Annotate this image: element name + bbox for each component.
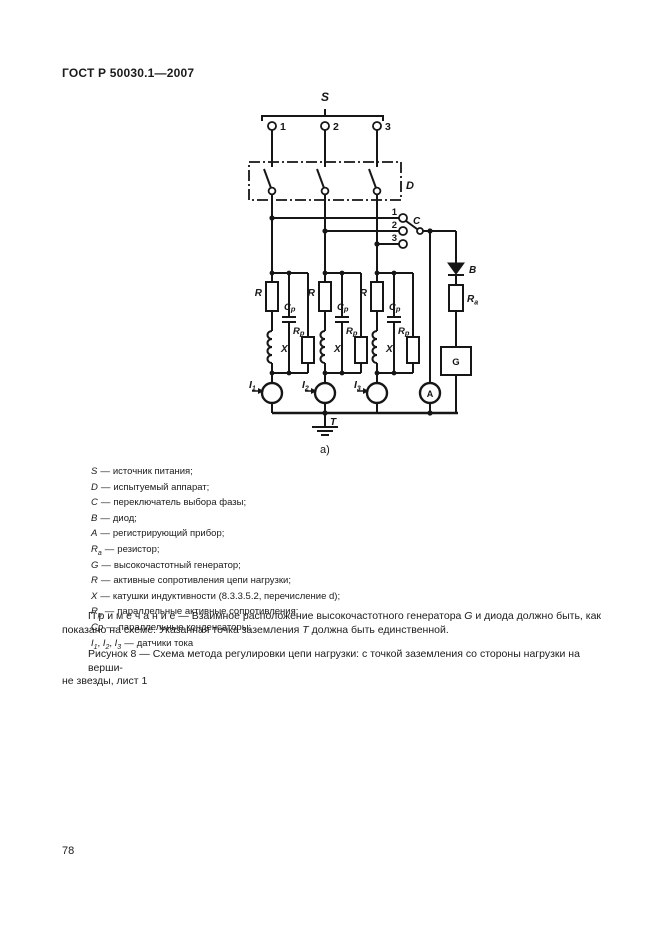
legend-item-g: G—высокочастотный генератор; bbox=[91, 560, 340, 576]
label-selector-2: 2 bbox=[392, 220, 397, 231]
note: П р и м е ч а н и е — Взаимное расположе… bbox=[62, 610, 610, 637]
legend-item-s: S—источник питания; bbox=[91, 466, 340, 482]
label-cp-1: Cp bbox=[284, 302, 296, 314]
legend-item-ra: Rа—резистор; bbox=[91, 544, 340, 560]
label-ground: T bbox=[330, 417, 337, 428]
legend-item-x: X—катушки индуктивности (8.3.3.5.2, пере… bbox=[91, 591, 340, 607]
label-sensor-2: I2 bbox=[302, 379, 309, 393]
label-cp-2: Cp bbox=[337, 302, 349, 314]
document-page: ГОСТ Р 50030.1—2007 bbox=[0, 0, 661, 936]
label-source: S bbox=[321, 90, 329, 104]
label-generator: G bbox=[452, 357, 459, 368]
label-selector-1: 1 bbox=[392, 207, 398, 218]
label-rp-3: Rp bbox=[398, 326, 410, 338]
label-load-r-3: R bbox=[360, 288, 368, 299]
circuit-diagram: S 1 2 3 D 1 2 3 C B Rа G A R R R X X X C… bbox=[0, 0, 661, 470]
label-rp-1: Rp bbox=[293, 326, 305, 338]
label-sensor-1: I1 bbox=[249, 379, 256, 393]
current-sensor-circles bbox=[262, 383, 440, 403]
legend-item-a: A—регистрирующий прибор; bbox=[91, 528, 340, 544]
label-terminal-1: 1 bbox=[280, 121, 286, 133]
label-rp-2: Rp bbox=[346, 326, 358, 338]
caption-line-2: не звезды, лист 1 bbox=[62, 675, 610, 689]
legend-item-b: B—диод; bbox=[91, 513, 340, 529]
label-device: D bbox=[406, 180, 414, 192]
label-resistor-ra: Rа bbox=[467, 294, 478, 307]
label-inductor-2: X bbox=[333, 344, 342, 355]
legend-item-d: D—испытуемый аппарат; bbox=[91, 482, 340, 498]
label-selector: C bbox=[413, 216, 421, 227]
contact-circles bbox=[268, 122, 423, 248]
note-line-1: П р и м е ч а н и е — Взаимное расположе… bbox=[62, 610, 610, 624]
label-meter: A bbox=[427, 389, 434, 399]
label-terminal-2: 2 bbox=[333, 121, 339, 133]
page-number: 78 bbox=[62, 845, 74, 857]
legend-item-c: C—переключатель выбора фазы; bbox=[91, 497, 340, 513]
note-line-2: показано на схеме. Указанная точка зазем… bbox=[62, 624, 610, 638]
label-inductor-1: X bbox=[280, 344, 289, 355]
figure-caption: Рисунок 8 — Схема метода регулировки цеп… bbox=[62, 648, 610, 689]
label-cp-3: Cp bbox=[389, 302, 401, 314]
diode-icon bbox=[448, 263, 464, 274]
label-selector-3: 3 bbox=[392, 233, 397, 244]
label-load-r-1: R bbox=[255, 288, 263, 299]
label-sensor-3: I3 bbox=[354, 379, 361, 393]
label-diode: B bbox=[469, 265, 476, 276]
legend-item-r: R—активные сопротивления цепи нагрузки; bbox=[91, 575, 340, 591]
label-inductor-3: X bbox=[385, 344, 394, 355]
label-load-r-2: R bbox=[308, 288, 316, 299]
figure-sublabel: а) bbox=[320, 444, 330, 456]
label-terminal-3: 3 bbox=[385, 121, 391, 133]
caption-line-1: Рисунок 8 — Схема метода регулировки цеп… bbox=[62, 648, 610, 675]
